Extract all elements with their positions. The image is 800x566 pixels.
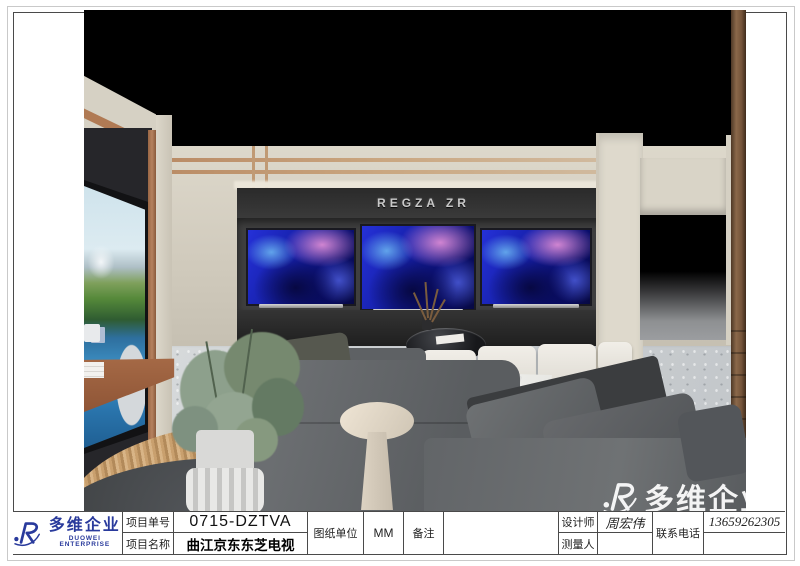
unit-value-cell: MM — [363, 512, 403, 554]
role-label-column: 设计师 测量人 — [558, 512, 597, 554]
render-view: REGZA ZR — [84, 10, 746, 511]
phone-label: 联系电话 — [656, 525, 700, 541]
company-name: 多维企业 DUOWEI ENTERPRISE — [48, 518, 122, 549]
watermark: 多维企业 — [602, 474, 746, 511]
shelf-decor — [84, 324, 100, 342]
copper-vertical-trim — [148, 130, 156, 490]
drawing-sheet: REGZA ZR — [0, 0, 800, 566]
project-no-value: 0715-DZTVA — [189, 513, 291, 531]
dark-doorway — [640, 215, 726, 340]
remark-label: 备注 — [413, 525, 435, 541]
project-name-value: 曲江京东东芝电视 — [187, 534, 295, 554]
unit-label: 图纸单位 — [314, 525, 358, 541]
duowei-logo-icon — [602, 478, 640, 511]
project-label-column: 项目单号 项目名称 — [122, 512, 173, 554]
designer-label: 设计师 — [562, 514, 595, 530]
doorway-header — [640, 158, 726, 215]
company-name-cn: 多维企业 — [48, 518, 122, 534]
duowei-logo-icon — [13, 516, 43, 550]
book-stack — [84, 362, 104, 378]
sofa-armrest — [676, 403, 746, 483]
designer-value: 周宏伟 — [605, 513, 644, 532]
phone-value-cell: 13659262305 — [703, 512, 785, 554]
title-block: 多维企业 DUOWEI ENTERPRISE 项目单号 项目名称 0715-DZ… — [13, 511, 785, 554]
unit-value: MM — [374, 526, 394, 540]
remark-label-cell: 备注 — [403, 512, 443, 554]
tv-screen-right — [480, 228, 592, 306]
tv-screen-center — [360, 224, 476, 311]
unit-label-cell: 图纸单位 — [307, 512, 363, 554]
remark-value-cell — [443, 512, 558, 554]
phone-value: 13659262305 — [709, 514, 781, 530]
role-value-column: 周宏伟 — [597, 512, 652, 554]
company-name-en: DUOWEI ENTERPRISE — [48, 536, 122, 549]
left-tv-nature-screen — [84, 186, 145, 448]
white-vase-fluted-base — [186, 468, 264, 511]
project-value-column: 0715-DZTVA 曲江京东东芝电视 — [173, 512, 307, 554]
brand-sign-band: REGZA ZR — [237, 188, 610, 218]
watermark-text: 多维企业 — [644, 475, 746, 511]
tv-soundbar — [493, 304, 579, 308]
project-name-label: 项目名称 — [126, 536, 170, 552]
tv-soundbar — [259, 304, 344, 308]
surveyor-label: 测量人 — [562, 536, 595, 552]
regza-sign-text: REGZA ZR — [377, 196, 470, 210]
tv-screen-left — [246, 228, 356, 306]
phone-label-cell: 联系电话 — [652, 512, 703, 554]
project-no-label: 项目单号 — [126, 514, 170, 530]
company-logo: 多维企业 DUOWEI ENTERPRISE — [13, 512, 122, 554]
